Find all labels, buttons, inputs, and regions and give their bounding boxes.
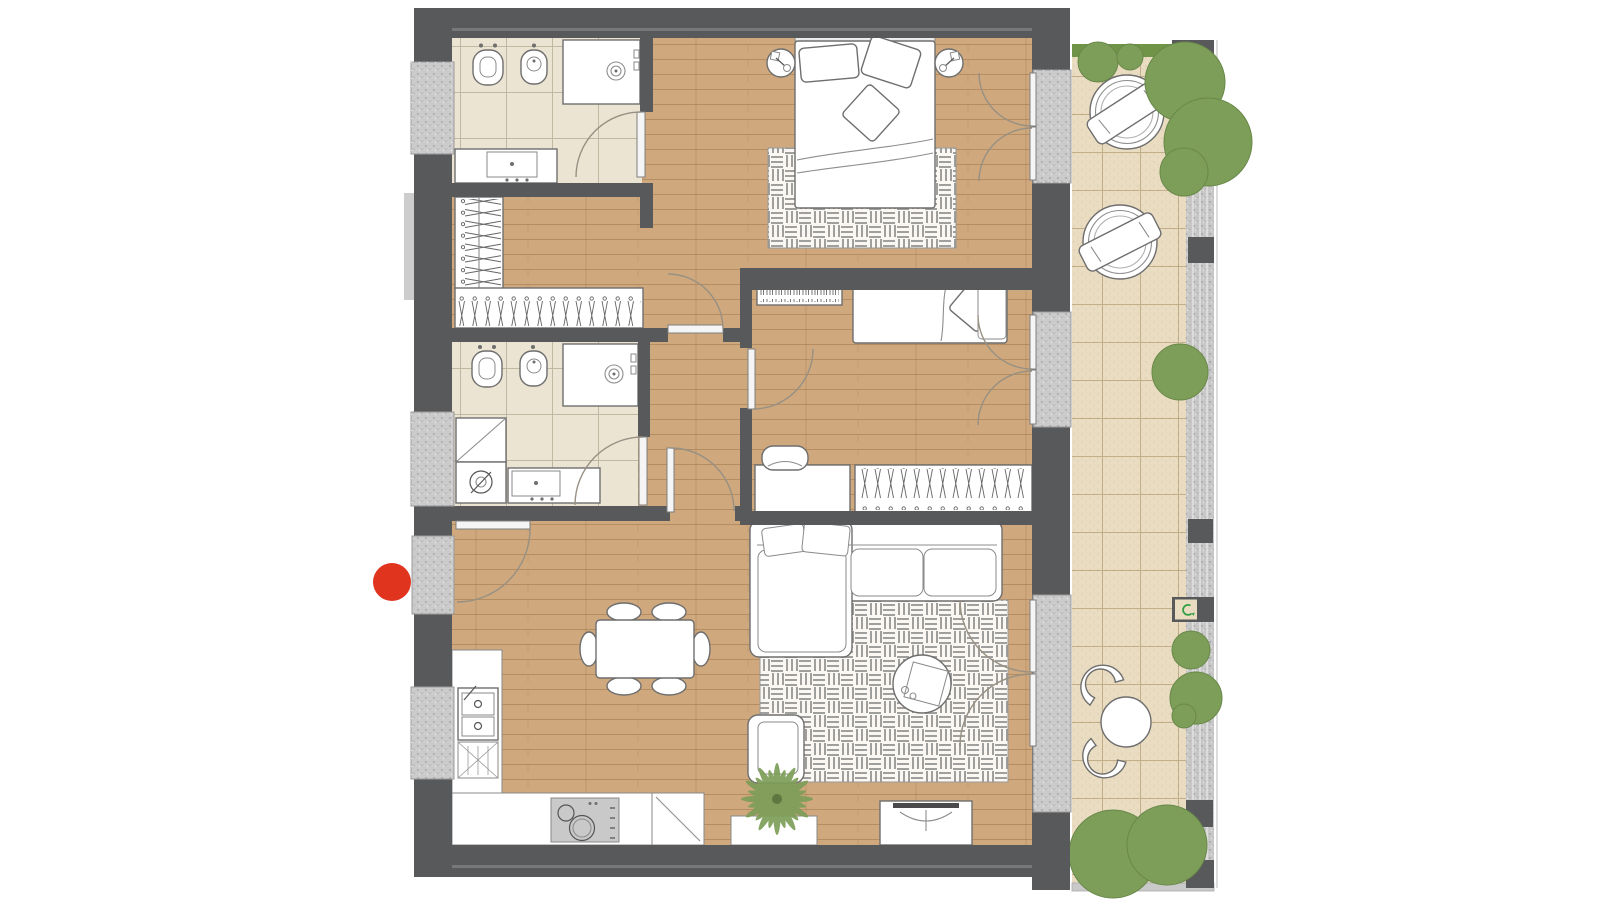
entrance-marker[interactable]: [373, 563, 411, 601]
wall-bedroom2-top: [740, 268, 1032, 290]
bush: [1078, 42, 1118, 82]
wardrobe-hangers: [855, 465, 1032, 513]
bush: [1160, 148, 1208, 196]
floor-plan-canvas: [0, 0, 1600, 900]
corner-cabinet: [652, 793, 704, 845]
sofa-pillow: [761, 523, 806, 557]
cooktop: [551, 798, 619, 842]
lamp: [784, 65, 791, 72]
wall-bedroom2-bottom: [740, 511, 1032, 525]
vanity-sink: [508, 468, 600, 503]
dining-chair: [607, 677, 641, 695]
kitchen-counter-bottom: [452, 793, 704, 845]
wall-inner-line-bottom: [452, 865, 1032, 868]
pillow: [799, 44, 860, 83]
dish-rack: [458, 742, 498, 778]
wall-closet-bath2: [452, 328, 668, 342]
lamp: [940, 65, 947, 72]
planter-box: [1188, 519, 1213, 543]
planter-box: [1188, 237, 1214, 263]
dining-chair: [607, 603, 641, 621]
shower-fixture: [631, 366, 636, 374]
seat-cushion: [924, 549, 996, 596]
shower-fixture: [631, 354, 636, 362]
tall-cabinet: [456, 418, 506, 462]
shower-fixture: [634, 62, 639, 70]
wall-inner-line-top: [452, 28, 1032, 31]
drain-box: [1172, 597, 1214, 622]
chaise-seat: [758, 550, 846, 652]
nightstand-left: [767, 49, 795, 77]
wall-exterior-top: [414, 8, 1070, 38]
palm-center: [772, 794, 782, 804]
master-bedroom: [767, 33, 963, 208]
round-coffee-table: [893, 655, 951, 713]
wardrobe-left-hangers: [455, 197, 503, 289]
exterior-pilaster: [404, 193, 414, 300]
dining-chair: [652, 677, 686, 695]
wall-bedroom2-left-lower: [740, 408, 752, 512]
bush: [1127, 805, 1207, 885]
wall-bath1-right: [640, 8, 653, 112]
wall-bedroom2-left-upper: [740, 290, 752, 348]
drain-box-inner: [1175, 600, 1197, 620]
tv-screen: [893, 803, 959, 808]
sofa-pillow: [802, 522, 851, 557]
wardrobe-bottom-hangers: [455, 288, 643, 328]
shower-tray: [563, 40, 640, 104]
bush: [1172, 704, 1196, 728]
desk-chair: [762, 446, 808, 470]
terrace: [1069, 40, 1252, 898]
bush: [1172, 631, 1210, 669]
wall-bath1-closet: [452, 183, 653, 197]
wall-exterior-bottom: [414, 845, 1070, 877]
shower-fixture: [634, 50, 639, 58]
wall-living-top-left: [452, 506, 670, 521]
washing-machine: [456, 462, 506, 503]
nightstand-right: [935, 49, 963, 77]
vanity-sink: [455, 149, 557, 183]
bush: [1117, 44, 1143, 70]
bush: [1152, 344, 1208, 400]
floor-plan-svg: [0, 0, 1600, 900]
bistro-table: [1101, 697, 1151, 747]
wall-closet-right-stub: [640, 183, 653, 228]
tv-bench: [880, 801, 972, 845]
shower-tray: [563, 344, 638, 406]
dining-chair: [652, 603, 686, 621]
dining-table: [596, 620, 694, 678]
double-sink: [458, 686, 498, 740]
seat-cushion: [851, 549, 923, 596]
wall-bath2-right: [638, 342, 650, 437]
